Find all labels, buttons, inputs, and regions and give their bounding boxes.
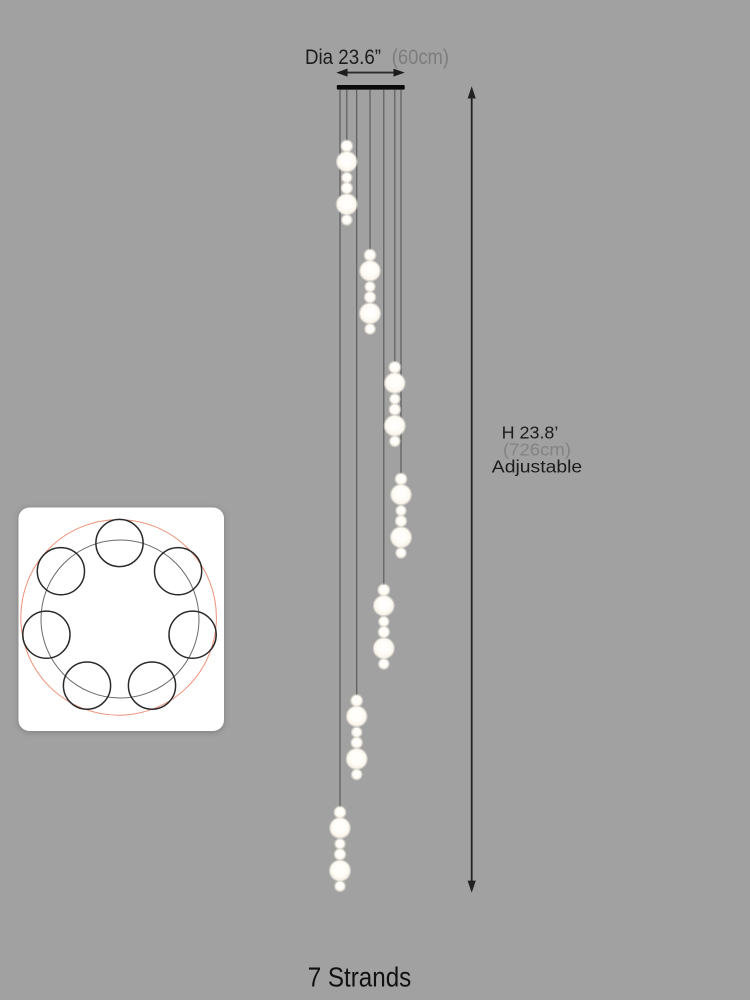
- svg-text:(60cm): (60cm): [392, 45, 449, 69]
- svg-text:7 Strands: 7 Strands: [308, 962, 412, 993]
- svg-text:Adjustable: Adjustable: [492, 457, 582, 477]
- svg-text:Dia 23.6”: Dia 23.6”: [305, 45, 381, 69]
